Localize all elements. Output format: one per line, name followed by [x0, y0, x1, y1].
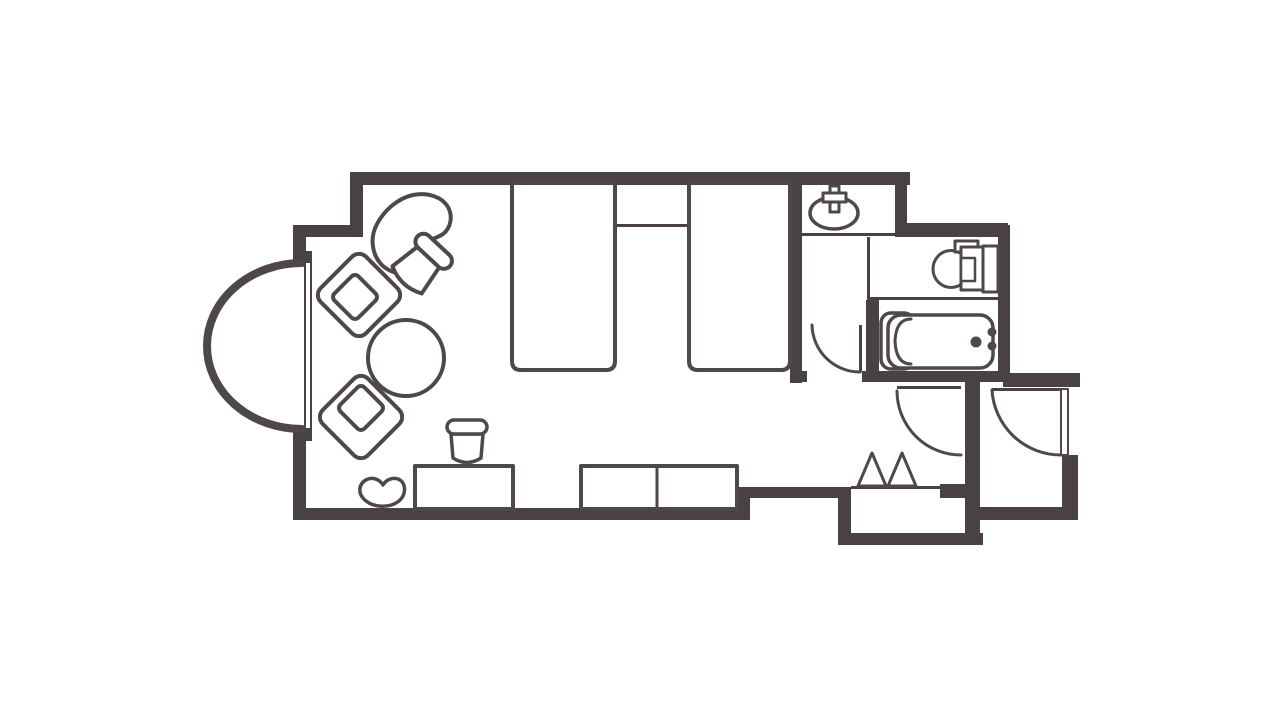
genkan-step-mark-2	[888, 453, 916, 486]
entrance-door-header-line	[992, 388, 1061, 391]
hotel-room-floor-plan	[0, 0, 1280, 720]
bathtub-faucet-dot	[971, 337, 982, 348]
desk-stool-body	[451, 434, 483, 463]
entrance-door-leaf	[1061, 389, 1068, 455]
toilet-seat-notch	[961, 258, 975, 281]
bathtub-knob-2	[988, 342, 997, 351]
hall-door-arc	[897, 391, 961, 455]
top-wall	[350, 172, 910, 185]
toilet-room-top-wall	[895, 223, 1008, 237]
bathtub-knob-1	[988, 328, 997, 337]
sink-faucet-horizontal	[823, 193, 846, 202]
washroom-door-leaf	[859, 325, 862, 372]
tv-board	[581, 466, 737, 509]
genkan-step-mark-1	[858, 453, 886, 486]
bathroom-right-wall	[998, 225, 1010, 382]
bottom-wall-right	[737, 487, 847, 498]
hall-door-leaf	[897, 386, 961, 389]
desk	[415, 466, 513, 509]
floor-cushion	[360, 478, 405, 506]
bay-window-glass-inner	[310, 262, 312, 429]
entry-divider-nub	[940, 484, 966, 498]
sink-counter-line	[797, 233, 895, 236]
bed-2	[689, 183, 790, 370]
tub-room-left-wall	[866, 300, 879, 382]
entry-top-wall	[1003, 373, 1080, 387]
toilet-tank	[983, 246, 998, 292]
washroom-door-arc	[812, 325, 860, 372]
entry-right-wall	[1062, 455, 1078, 520]
entrance-door-arc	[992, 390, 1061, 455]
genkan-wall-bottom	[838, 533, 983, 545]
nightstand-front-line	[617, 224, 688, 227]
floor-plan-page	[0, 0, 1280, 720]
bay-window-glass-outer	[304, 262, 306, 429]
left-wall-lower	[293, 428, 306, 520]
bay-window-arc	[207, 263, 302, 429]
desk-stool-top	[447, 420, 487, 434]
bathroom-bottom-wall	[862, 371, 1010, 382]
round-table	[368, 320, 444, 396]
toilet-tub-partition	[867, 297, 1000, 300]
bed-1	[512, 183, 615, 370]
washroom-toilet-partition	[867, 237, 870, 300]
entry-divider-wall	[965, 378, 980, 545]
